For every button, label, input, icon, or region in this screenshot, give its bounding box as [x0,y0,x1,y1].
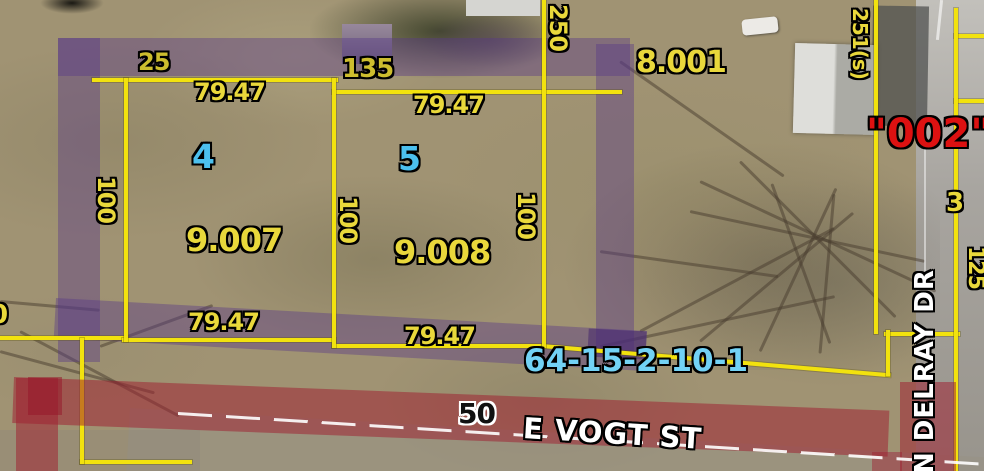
parcel-boundary-line [954,99,984,103]
dimension-135-label: 135 [342,56,393,82]
dimension-79-47-label: 79.47 [194,80,265,104]
building-roof [871,6,929,127]
dimension-100-label: 100 [514,192,538,239]
dimension-100-label: 100 [94,176,118,223]
dimension-251s-label: 251(s) [850,8,870,80]
dimension-25-label: 25 [138,50,169,74]
parcel-boundary-line [0,336,126,340]
lot-5-number-label: 5 [398,142,420,175]
dimension-79-47-label: 79.47 [413,93,484,117]
parcel-boundary-line [124,78,128,342]
parcel-9008-id-label: 9.008 [394,236,490,268]
dimension-125-label: 125 [964,246,984,289]
parcel-boundary-line [874,0,878,334]
dimension-50-label: 50 [458,400,495,428]
street-buffer-overlay [872,452,902,471]
parcel-8001-id-label: 8.001 [636,48,726,78]
street-buffer-overlay [28,377,62,415]
parcel-boundary-line [886,330,890,376]
street-name-n-delray-dr: N DELRAY DR [912,252,938,471]
lot-4-number-label: 4 [192,140,214,173]
block-number-label: 64-15-2-10-1 [524,346,748,377]
dimension-79-47-label: 79.47 [188,310,259,334]
parcel-boundary-line [542,0,546,348]
parcel-002-highlight-label: "002" [866,114,984,154]
building-roof [466,0,540,16]
dimension-250-label: 250 [546,4,570,51]
parcel-boundary-line [954,34,984,38]
dimension-3-label: 3 [946,190,963,216]
aerial-map-canvas[interactable]: 25 135 79.47 79.47 250 8.001 251(s) "002… [0,0,984,471]
tree-canopy [40,0,104,14]
dimension-100-label: 100 [336,196,360,243]
dimension-79-47-label: 79.47 [404,324,475,348]
dimension-edge-partial-label: 0 [0,302,7,328]
parcel-boundary-line [122,338,336,342]
parcel-9007-id-label: 9.007 [186,224,282,256]
parcel-boundary-line [80,460,192,464]
